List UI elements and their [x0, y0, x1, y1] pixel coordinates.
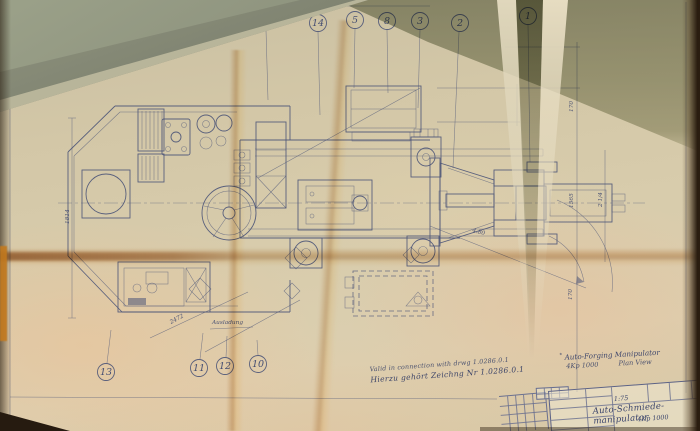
- right-motor: [411, 129, 441, 177]
- balloon-number: 11: [193, 363, 205, 374]
- title-block-scale: 1:75: [613, 394, 628, 403]
- title-block-model: 4Kp 1000: [637, 413, 669, 423]
- photo-edge-orange-band: [0, 246, 7, 341]
- lower-gearbox: [118, 262, 210, 312]
- balloon-11: 11: [191, 333, 208, 377]
- hidden-underframe: [345, 271, 433, 316]
- photo-of-engineering-drawing: 1814 2472 Ausladung 170 1565 2 1/4 4.80 …: [0, 0, 700, 431]
- balloon-14: 14: [310, 15, 327, 116]
- pulley-group: [197, 115, 232, 149]
- balloon-10: 10: [250, 340, 267, 373]
- balloon-number: 13: [100, 367, 112, 378]
- photo-edge-left: [0, 0, 11, 431]
- photo-edge-right: [682, 0, 700, 431]
- balloon-number: 10: [252, 359, 264, 370]
- balloon-number: 14: [312, 18, 324, 29]
- title-model: 4Kp 1000: [566, 361, 599, 371]
- photo-edge-bottom: [480, 427, 700, 431]
- horizontal-crease-left: [0, 252, 250, 261]
- dim-right-top: 170: [569, 101, 575, 112]
- body-rails: [240, 140, 543, 238]
- dim-right-mid-b: 2 1/4: [598, 192, 604, 208]
- dim-right-mid-a: 1565: [569, 193, 575, 208]
- carriage-outline: [68, 106, 290, 312]
- dim-right-bottom: 170: [568, 289, 574, 300]
- dim-left-height: 1814: [65, 209, 71, 224]
- left-wheel: [82, 170, 130, 218]
- title-mark: *: [560, 353, 563, 359]
- dim-boom-reach: 2472: [168, 313, 185, 326]
- motor-block: [138, 109, 190, 182]
- title-view: Plan View: [618, 358, 651, 368]
- balloon-13: 13: [98, 330, 115, 381]
